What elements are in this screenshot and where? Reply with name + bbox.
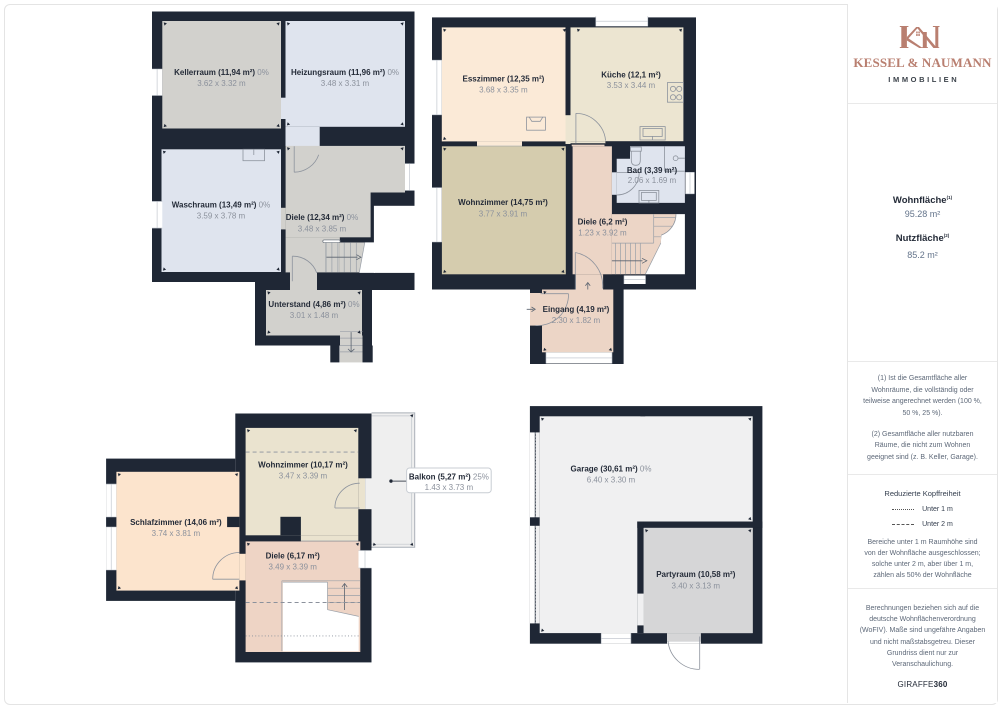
svg-text:3.01 x 1.48 m: 3.01 x 1.48 m xyxy=(290,311,339,320)
svg-text:1.43 x 3.73 m: 1.43 x 3.73 m xyxy=(425,483,474,492)
svg-text:Bad (3,39 m²): Bad (3,39 m²) xyxy=(627,166,678,175)
svg-text:6.40 x 3.30 m: 6.40 x 3.30 m xyxy=(587,476,636,485)
svg-text:Diele (12,34 m²) 0%: Diele (12,34 m²) 0% xyxy=(286,213,359,222)
svg-text:3.62 x 3.32 m: 3.62 x 3.32 m xyxy=(197,79,246,88)
svg-text:Garage (30,61 m²) 0%: Garage (30,61 m²) 0% xyxy=(571,464,652,473)
svg-text:3.47 x 3.39 m: 3.47 x 3.39 m xyxy=(279,472,328,481)
svg-text:3.59 x 3.78 m: 3.59 x 3.78 m xyxy=(197,212,246,221)
svg-text:Wohnzimmer (14,75 m²): Wohnzimmer (14,75 m²) xyxy=(458,198,548,207)
svg-text:2.30 x 1.82 m: 2.30 x 1.82 m xyxy=(552,316,601,325)
svg-text:3.77 x 3.91 m: 3.77 x 3.91 m xyxy=(479,210,528,219)
svg-text:3.48 x 3.31 m: 3.48 x 3.31 m xyxy=(321,79,370,88)
svg-text:Unterstand (4,86 m²) 0%: Unterstand (4,86 m²) 0% xyxy=(268,300,359,309)
svg-text:3.68 x 3.35 m: 3.68 x 3.35 m xyxy=(479,86,528,95)
svg-text:Waschraum (13,49 m²) 0%: Waschraum (13,49 m²) 0% xyxy=(172,201,270,210)
svg-text:Partyraum (10,58 m²): Partyraum (10,58 m²) xyxy=(656,570,735,579)
svg-text:3.40 x 3.13 m: 3.40 x 3.13 m xyxy=(672,581,721,590)
svg-text:Diele (6,17 m²): Diele (6,17 m²) xyxy=(266,552,321,561)
svg-text:3.53 x 3.44 m: 3.53 x 3.44 m xyxy=(607,81,656,90)
svg-text:Küche (12,1 m²): Küche (12,1 m²) xyxy=(601,70,661,79)
svg-text:2.06 x 1.69 m: 2.06 x 1.69 m xyxy=(628,176,677,185)
svg-text:Diele (6,2 m²): Diele (6,2 m²) xyxy=(578,217,628,226)
svg-text:Schlafzimmer (14,06 m²): Schlafzimmer (14,06 m²) xyxy=(130,518,222,527)
svg-text:1.23 x 3.92 m: 1.23 x 3.92 m xyxy=(578,229,627,238)
svg-text:Wohnzimmer (10,17 m²): Wohnzimmer (10,17 m²) xyxy=(258,461,348,470)
svg-text:Esszimmer (12,35 m²): Esszimmer (12,35 m²) xyxy=(462,75,544,84)
svg-text:3.48 x 3.85 m: 3.48 x 3.85 m xyxy=(298,225,347,234)
svg-text:Kellerraum (11,94 m²) 0%: Kellerraum (11,94 m²) 0% xyxy=(174,68,269,77)
svg-text:3.49 x 3.39 m: 3.49 x 3.39 m xyxy=(268,563,317,572)
svg-text:Heizungsraum (11,96 m²) 0%: Heizungsraum (11,96 m²) 0% xyxy=(291,68,399,77)
svg-text:3.74 x 3.81 m: 3.74 x 3.81 m xyxy=(152,529,201,538)
svg-text:Balkon (5,27 m²) 25%: Balkon (5,27 m²) 25% xyxy=(409,472,489,481)
svg-text:Eingang (4,19 m²): Eingang (4,19 m²) xyxy=(543,305,610,314)
